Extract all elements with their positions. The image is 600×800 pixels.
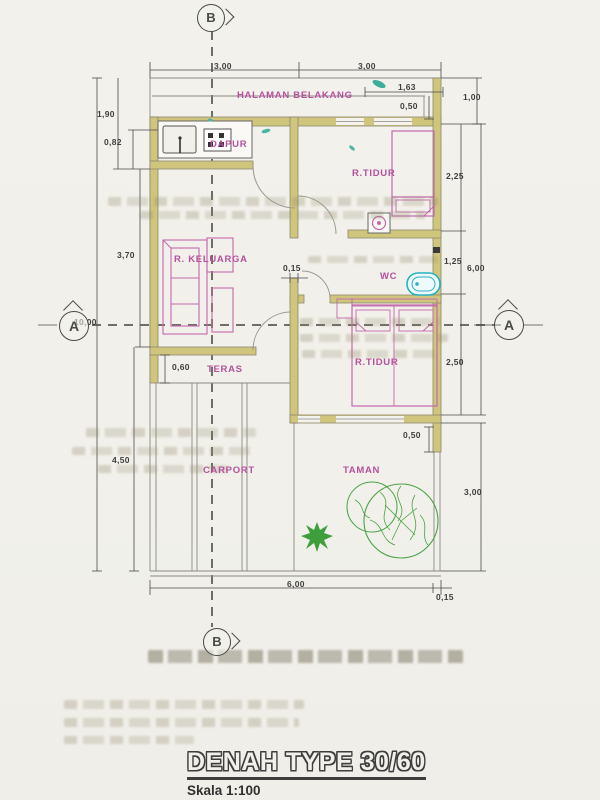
wc-fixture	[407, 273, 440, 295]
shrub-plant	[301, 522, 333, 552]
garden-plants	[301, 482, 438, 558]
sink-faucet-head	[178, 136, 181, 139]
bathtub-drain	[415, 282, 419, 286]
dim-015-entry: 0,15	[283, 263, 301, 273]
fan-center	[377, 221, 381, 225]
dim-060: 0,60	[172, 362, 190, 372]
room-label-dapur: DAPUR	[210, 139, 247, 150]
wall-kitchen-south	[150, 161, 253, 169]
teal-speck	[371, 78, 386, 89]
tree-branch	[385, 505, 417, 540]
wall-terrace-north	[150, 347, 256, 355]
dim-015-bottom: 0,15	[436, 592, 454, 602]
dim-082: 0,82	[104, 137, 122, 147]
dark-mark	[433, 247, 440, 253]
bleed-text-line	[64, 718, 299, 727]
dim-225: 2,25	[446, 171, 464, 181]
room-label-wc: WC	[380, 271, 397, 282]
bleed-text-line	[86, 428, 256, 437]
wall-west	[150, 117, 158, 383]
tree-branch	[380, 492, 390, 530]
room-label-rtidur-1: R.TIDUR	[352, 168, 395, 179]
plan-drawing	[0, 0, 600, 800]
bleed-text-line	[300, 318, 440, 326]
room-label-rkeluarga: R. KELUARGA	[174, 254, 248, 265]
floor-plan-sheet: HALAMAN BELAKANG DAPUR R.TIDUR R. KELUAR…	[0, 0, 600, 800]
dim-190: 1,90	[97, 109, 115, 119]
door-arc-wc	[302, 271, 330, 299]
stove-burner	[219, 133, 224, 138]
coffee-table	[212, 288, 233, 332]
room-label-carport: CARPORT	[203, 465, 255, 476]
dim-450: 4,50	[112, 455, 130, 465]
dim-100: 1,00	[463, 92, 481, 102]
room-label-halaman-belakang: HALAMAN BELAKANG	[237, 90, 353, 101]
bed1-fold	[424, 206, 434, 216]
dim-top-2: 3,00	[358, 61, 376, 71]
wall-entry-column	[290, 278, 298, 423]
dim-250: 2,50	[446, 357, 464, 367]
sofa-corner	[163, 240, 171, 248]
dim-163: 1,63	[398, 82, 416, 92]
teal-speck	[348, 145, 355, 152]
room-label-rtidur-2: R.TIDUR	[355, 357, 398, 368]
dim-125: 1,25	[444, 256, 462, 266]
dim-600-bottom: 6,00	[287, 579, 305, 589]
room-label-teras: TERAS	[207, 364, 243, 375]
tree-canopy-small	[347, 482, 397, 532]
dim-370: 3,70	[117, 250, 135, 260]
teal-speck	[208, 119, 213, 122]
drawing-title: DENAH TYPE 30/60	[187, 750, 426, 780]
room-label-taman: TAMAN	[343, 465, 380, 476]
bleed-text-line	[72, 447, 252, 455]
dim-top-1: 3,00	[214, 61, 232, 71]
title-block: DENAH TYPE 30/60 Skala 1:100	[187, 750, 426, 798]
drawing-scale: Skala 1:100	[187, 783, 426, 798]
tree-branch	[420, 515, 428, 545]
sofa-set	[163, 238, 233, 334]
wall-bedroom1-south	[348, 230, 441, 238]
dim-050-top: 0,50	[400, 101, 418, 111]
bleed-text-line	[308, 256, 438, 263]
bleed-text-line	[148, 650, 463, 663]
bleed-text-line	[108, 197, 438, 206]
door-arc-entry	[253, 312, 291, 350]
bleed-text-line	[64, 736, 194, 744]
wall-bedroom1-west	[290, 117, 298, 238]
teal-speck	[261, 128, 271, 134]
dim-300-right: 3,00	[464, 487, 482, 497]
tree-branch	[355, 500, 370, 518]
dim-050-mid: 0,50	[403, 430, 421, 440]
tree-branch	[398, 486, 402, 521]
bleed-text-line	[64, 700, 304, 709]
bleed-text-line	[300, 334, 448, 342]
stove-burner	[208, 133, 213, 138]
bleed-text-line	[140, 211, 425, 219]
tree-branch	[370, 520, 395, 545]
dim-600-right: 6,00	[467, 263, 485, 273]
